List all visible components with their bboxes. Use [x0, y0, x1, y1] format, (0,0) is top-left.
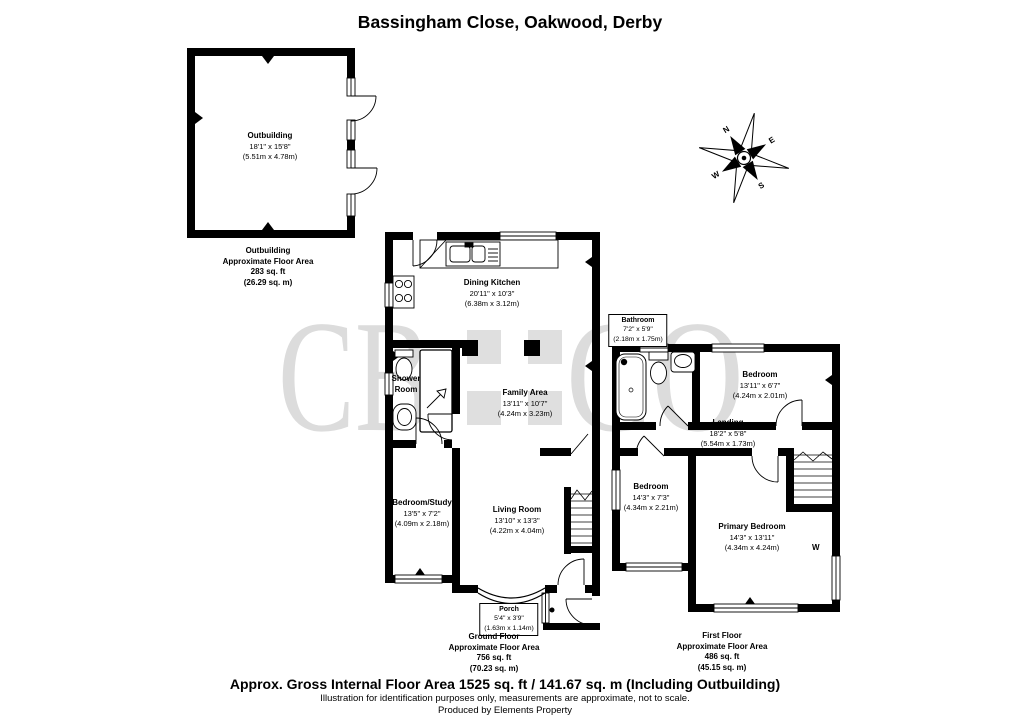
ground-floor-stairs — [571, 490, 592, 543]
room-name: Primary Bedroom — [718, 522, 785, 533]
room-label-bedroom-study: Bedroom/Study 13'5" x 7'2" (4.09m x 2.18… — [392, 498, 452, 529]
room-dims-m: (6.38m x 3.12m) — [464, 299, 520, 309]
room-label-bedroom-front: Bedroom 13'11" x 6'7" (4.24m x 2.01m) — [733, 370, 788, 401]
caption-floor: Ground Floor — [449, 632, 540, 643]
footer-disclaimer: Illustration for identification purposes… — [320, 693, 689, 704]
room-label-family-area: Family Area 13'11" x 10'7" (4.24m x 3.23… — [498, 388, 553, 419]
caption-area-ft: 486 sq. ft — [677, 652, 768, 663]
room-name: Bedroom/Study — [392, 498, 452, 509]
room-name: Living Room — [490, 505, 545, 516]
caption-area-ft: 756 sq. ft — [449, 653, 540, 664]
room-name: Landing — [701, 418, 756, 429]
room-dims-ft: 20'11" x 10'3" — [464, 289, 520, 299]
caption-area-m: (70.23 sq. m) — [449, 664, 540, 675]
room-dims-m: (2.18m x 1.75m) — [613, 335, 662, 344]
compass-w: W — [710, 169, 722, 181]
room-dims-m: (4.09m x 2.18m) — [392, 519, 452, 529]
room-dims-ft: 7'2" x 5'9" — [613, 325, 662, 334]
room-dims-ft: 13'11" x 6'7" — [733, 381, 788, 391]
room-dims-ft: 18'2" x 5'8" — [701, 429, 756, 439]
room-name: Bathroom — [613, 316, 662, 325]
room-dims-ft: 13'11" x 10'7" — [498, 399, 553, 409]
porch-dot — [550, 608, 555, 613]
caption-first-floor: First Floor Approximate Floor Area 486 s… — [677, 631, 768, 674]
room-label-primary-bedroom: Primary Bedroom 14'3" x 13'11" (4.34m x … — [718, 522, 785, 553]
room-dims-m: (5.51m x 4.78m) — [243, 152, 298, 162]
room-dims-ft: 13'10" x 13'3" — [490, 516, 545, 526]
caption-floor: First Floor — [677, 631, 768, 642]
room-label-bathroom: Bathroom 7'2" x 5'9" (2.18m x 1.75m) — [608, 314, 667, 347]
wardrobe-label: W — [812, 543, 820, 552]
footer-summary: Approx. Gross Internal Floor Area 1525 s… — [230, 676, 780, 692]
room-label-shower-room: Shower Room — [392, 374, 421, 396]
basin-icon — [393, 404, 416, 430]
bay-window — [478, 588, 545, 604]
bathtub-icon — [616, 354, 646, 420]
floorplan-page: CB CO — [0, 0, 1020, 720]
compass-e: E — [767, 135, 777, 146]
caption-area-m: (26.29 sq. m) — [223, 278, 314, 289]
caption-area-title: Approximate Floor Area — [449, 643, 540, 654]
caption-floor: Outbuilding — [223, 246, 314, 257]
room-name: Outbuilding — [243, 131, 298, 142]
room-name: Porch — [484, 605, 533, 614]
compass-n: N — [721, 124, 731, 135]
caption-area-title: Approximate Floor Area — [677, 642, 768, 653]
room-name: Bedroom — [624, 482, 679, 493]
first-floor-stairs — [794, 452, 832, 497]
room-name: Dining Kitchen — [464, 278, 520, 289]
footer-producer: Produced by Elements Property — [438, 705, 572, 716]
room-dims-ft: 13'5" x 7'2" — [392, 509, 452, 519]
room-label-porch: Porch 5'4" x 3'9" (1.63m x 1.14m) — [479, 603, 538, 636]
toilet-icon-first-floor — [649, 352, 668, 384]
room-dims-m: (4.34m x 2.21m) — [624, 503, 679, 513]
caption-ground-floor: Ground Floor Approximate Floor Area 756 … — [449, 632, 540, 675]
first-floor-plan — [612, 344, 840, 612]
sink-icon-first-floor — [671, 352, 695, 372]
room-name-line1: Shower — [392, 374, 421, 385]
compass-s: S — [757, 180, 767, 191]
room-dims-m: (5.54m x 1.73m) — [701, 439, 756, 449]
room-dims-ft: 5'4" x 3'9" — [484, 614, 533, 623]
room-name: Family Area — [498, 388, 553, 399]
room-label-dining-kitchen: Dining Kitchen 20'11" x 10'3" (6.38m x 3… — [464, 278, 520, 309]
room-dims-ft: 18'1" x 15'8" — [243, 142, 298, 152]
page-title: Bassingham Close, Oakwood, Derby — [358, 12, 662, 33]
room-label-outbuilding: Outbuilding 18'1" x 15'8" (5.51m x 4.78m… — [243, 131, 298, 162]
room-dims-ft: 14'3" x 7'3" — [624, 493, 679, 503]
room-dims-m: (4.34m x 4.24m) — [718, 543, 785, 553]
room-dims-ft: 14'3" x 13'11" — [718, 533, 785, 543]
room-dims-m: (4.22m x 4.04m) — [490, 526, 545, 536]
room-dims-m: (4.24m x 2.01m) — [733, 391, 788, 401]
room-dims-m: (4.24m x 3.23m) — [498, 409, 553, 419]
caption-outbuilding: Outbuilding Approximate Floor Area 283 s… — [223, 246, 314, 289]
room-label-landing: Landing 18'2" x 5'8" (5.54m x 1.73m) — [701, 418, 756, 449]
caption-area-m: (45.15 sq. m) — [677, 663, 768, 674]
room-name: Bedroom — [733, 370, 788, 381]
room-label-living-room: Living Room 13'10" x 13'3" (4.22m x 4.04… — [490, 505, 545, 536]
room-label-bedroom-rear: Bedroom 14'3" x 7'3" (4.34m x 2.21m) — [624, 482, 679, 513]
hob-icon — [393, 276, 414, 308]
caption-area-title: Approximate Floor Area — [223, 257, 314, 268]
kitchen-sink-icon — [446, 242, 500, 266]
room-name-line2: Room — [392, 385, 421, 396]
caption-area-ft: 283 sq. ft — [223, 267, 314, 278]
compass-rose: N E S W — [654, 68, 833, 247]
